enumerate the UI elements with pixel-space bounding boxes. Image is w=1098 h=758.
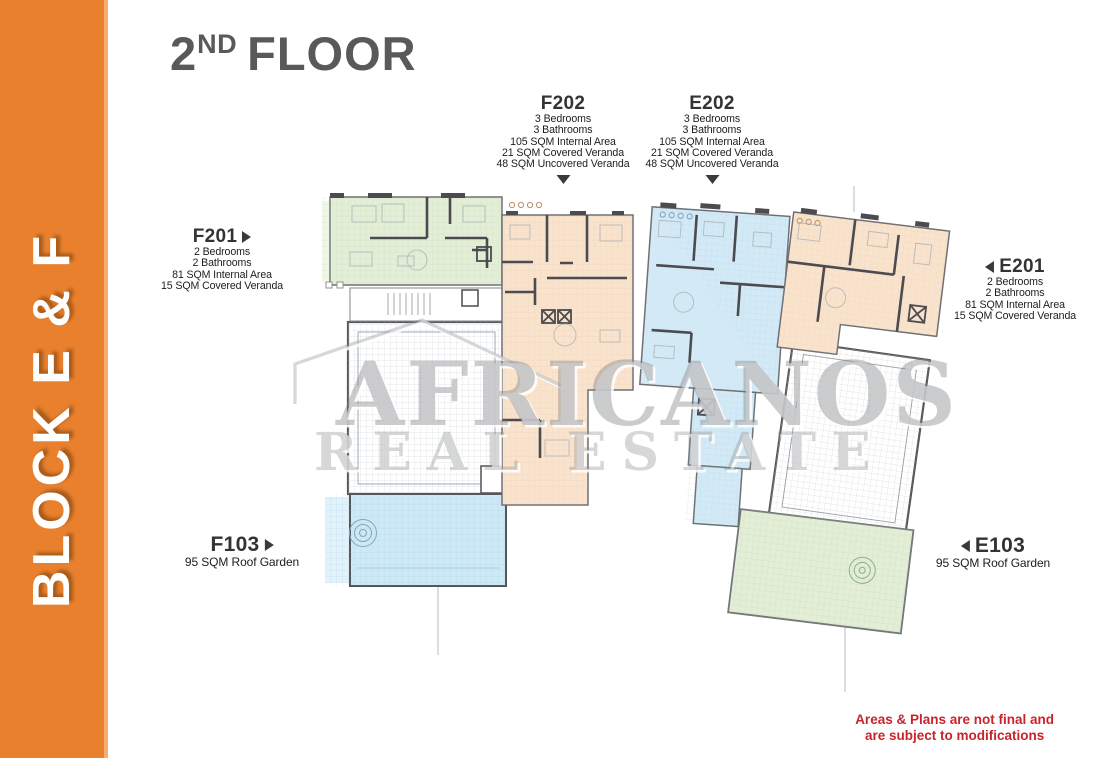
unit-label-f201: F201 2 Bedrooms 2 Bathrooms 81 SQM Inter… [161,227,283,292]
unit-detail: 48 SQM Uncovered Veranda [496,159,629,170]
unit-label-e201: E201 2 Bedrooms 2 Bathrooms 81 SQM Inter… [954,257,1076,322]
floor-word: FLOOR [247,27,416,80]
disclaimer-line1: Areas & Plans are not final and [855,712,1054,728]
unit-e103-roof-garden [728,509,913,633]
unit-detail: 48 SQM Uncovered Veranda [645,159,778,170]
unit-detail: 2 Bathrooms [954,288,1076,299]
vent-circles [509,202,541,207]
arrow-left-icon [985,261,994,273]
unit-name: F201 [193,227,238,247]
unit-name: E201 [999,257,1045,277]
page-title: 2NDFLOOR [170,26,417,81]
unit-label-f103: F103 95 SQM Roof Garden [185,534,299,569]
unit-label-e202: E202 3 Bedrooms 3 Bathrooms 105 SQM Inte… [645,94,778,184]
unit-detail: 15 SQM Covered Veranda [161,281,283,292]
watermark: AFRICANOS AFRICANOS REAL ESTATE REAL EST… [295,320,961,486]
unit-detail: 95 SQM Roof Garden [185,556,299,569]
arrow-right-icon [242,231,251,243]
arrow-down-icon [556,175,570,184]
unit-f201-floorplan [322,193,502,288]
stair-core [350,288,502,321]
floor-ordinal: ND [197,29,237,59]
unit-name: E103 [975,535,1025,557]
unit-label-f202: F202 3 Bedrooms 3 Bathrooms 105 SQM Inte… [496,94,629,184]
unit-label-e103: E103 95 SQM Roof Garden [936,535,1050,570]
unit-detail: 3 Bathrooms [645,125,778,136]
unit-detail: 3 Bathrooms [496,125,629,136]
unit-f103-roof-garden [325,494,506,586]
unit-detail: 15 SQM Covered Veranda [954,311,1076,322]
sidebar-stripe [104,0,108,758]
unit-detail: 95 SQM Roof Garden [936,557,1050,570]
floor-number: 2 [170,27,197,80]
disclaimer-line2: are subject to modifications [855,728,1054,744]
unit-name: E202 [645,94,778,114]
unit-name: F202 [496,94,629,114]
arrow-down-icon [705,175,719,184]
unit-name: F103 [210,534,259,556]
arrow-left-icon [961,540,970,552]
unit-detail: 2 Bathrooms [161,258,283,269]
disclaimer-note: Areas & Plans are not final and are subj… [855,712,1054,743]
arrow-right-icon [265,539,274,551]
watermark-line2: REAL ESTATE [314,422,886,483]
block-title: BLOCK E & F [22,232,82,608]
